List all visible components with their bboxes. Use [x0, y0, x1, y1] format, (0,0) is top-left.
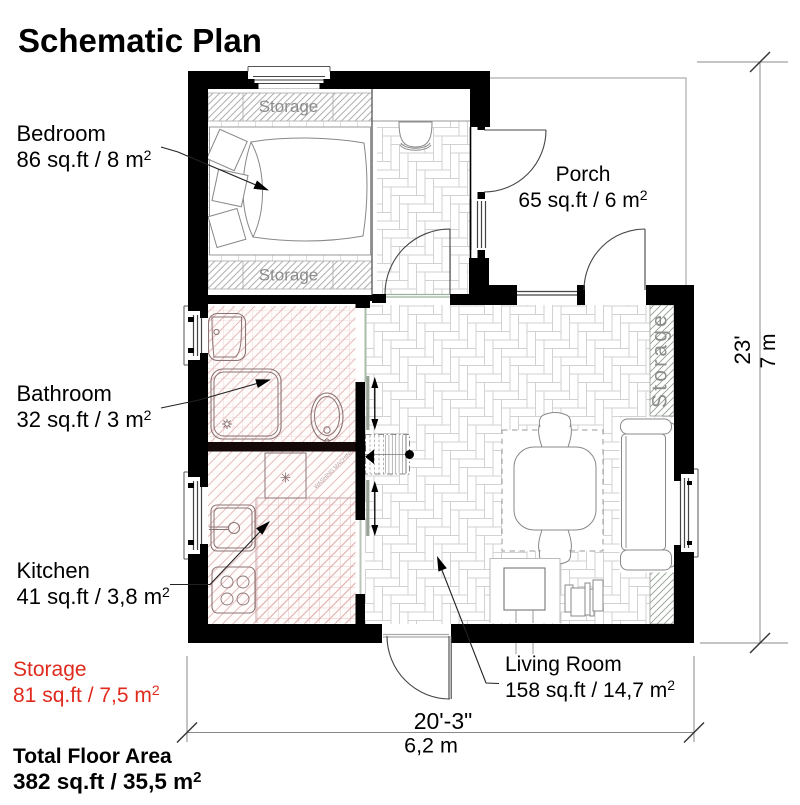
svg-text:Storage: Storage: [259, 97, 319, 116]
svg-text:Total Floor Area: Total Floor Area: [13, 745, 172, 768]
svg-text:20'-3": 20'-3": [414, 708, 473, 734]
svg-text:Living Room: Living Room: [505, 653, 622, 676]
svg-text:81 sq.ft / 7,5 m2: 81 sq.ft / 7,5 m2: [13, 682, 160, 707]
svg-text:23': 23': [730, 335, 755, 364]
svg-text:7 m: 7 m: [757, 333, 780, 368]
svg-text:65 sq.ft / 6 m2: 65 sq.ft / 6 m2: [518, 187, 647, 212]
svg-text:158 sq.ft / 14,7 m2: 158 sq.ft / 14,7 m2: [505, 677, 675, 702]
svg-text:32 sq.ft / 3 m2: 32 sq.ft / 3 m2: [17, 407, 152, 432]
svg-text:Storage: Storage: [259, 266, 319, 285]
svg-text:Kitchen: Kitchen: [17, 558, 90, 583]
svg-text:Porch: Porch: [556, 163, 611, 186]
svg-text:Bedroom: Bedroom: [17, 121, 106, 146]
svg-text:Schematic Plan: Schematic Plan: [18, 22, 262, 59]
svg-text:86 sq.ft / 8 m2: 86 sq.ft / 8 m2: [17, 147, 152, 172]
svg-text:41 sq.ft / 3,8 m2: 41 sq.ft / 3,8 m2: [17, 584, 171, 609]
svg-text:6,2 m: 6,2 m: [404, 734, 458, 758]
svg-text:Bathroom: Bathroom: [17, 381, 112, 406]
svg-text:Storage: Storage: [13, 658, 87, 681]
svg-text:382 sq.ft / 35,5 m2: 382 sq.ft / 35,5 m2: [13, 769, 201, 794]
svg-text:Storage: Storage: [649, 312, 672, 408]
